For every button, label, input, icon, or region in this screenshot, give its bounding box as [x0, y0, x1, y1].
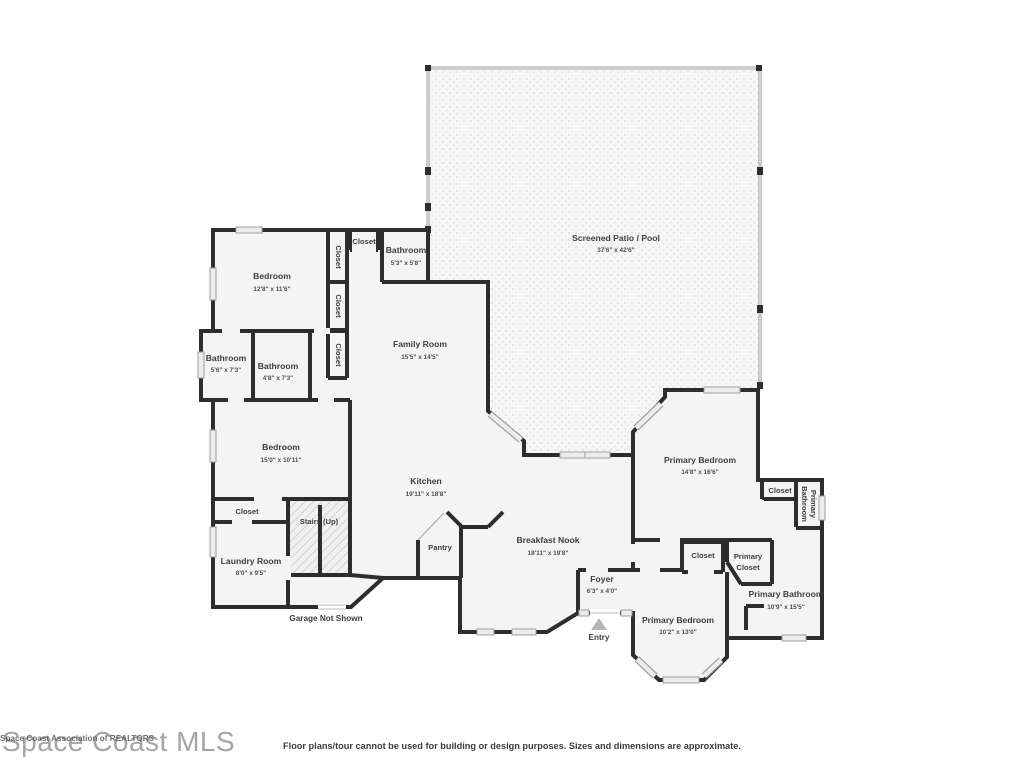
label-primary-bathroom-small: PrimaryBathroom	[800, 486, 818, 522]
label-primary-bedroom1-dims: 14'8" x 16'6"	[681, 469, 719, 476]
label-bathroom-left-name: Bathroom	[206, 353, 247, 363]
label-foyer-name: Foyer	[590, 574, 614, 584]
label-closet-bed2: Closet	[235, 507, 259, 516]
label-pantry: Pantry	[428, 543, 452, 552]
label-bedroom1-name: Bedroom	[253, 271, 291, 281]
label-bathroom-mid-dims: 4'8" x 7'3"	[263, 375, 293, 382]
watermark-overlay: Space Coast Association of REALTORS	[0, 734, 155, 743]
label-kitchen-name: Kitchen	[410, 476, 442, 486]
label-closet-foyer: Closet	[691, 551, 715, 560]
label-kitchen-dims: 19'11" x 18'8"	[406, 491, 447, 498]
disclaimer-text: Floor plans/tour cannot be used for buil…	[283, 741, 741, 751]
label-closet-v3: Closet	[334, 343, 343, 367]
label-closet-pb: Closet	[768, 486, 792, 495]
label-bathroom-top-name: Bathroom	[386, 245, 427, 255]
label-patio-dims: 37'6" x 42'6"	[597, 247, 635, 254]
floor-plan-canvas: Screened Patio / Pool 37'6" x 42'6" Bedr…	[0, 0, 1024, 768]
label-family-room-name: Family Room	[393, 339, 447, 349]
label-closet-top: Closet	[352, 237, 376, 246]
label-primary-closet-line2: Closet	[736, 563, 760, 572]
label-family-room-dims: 15'5" x 14'5"	[401, 354, 439, 361]
label-closet-v1: Closet	[334, 245, 343, 269]
label-primary-bathroom-name: Primary Bathroom	[749, 589, 824, 599]
label-breakfast-dims: 18'11" x 19'8"	[528, 550, 569, 557]
label-bathroom-top-dims: 5'3" x 5'8"	[391, 260, 421, 267]
label-primary-bedroom2-name: Primary Bedroom	[642, 615, 714, 625]
label-breakfast-name: Breakfast Nook	[516, 535, 579, 545]
label-laundry-dims: 8'0" x 9'5"	[236, 570, 266, 577]
label-bathroom-left-dims: 5'6" x 7'3"	[211, 367, 241, 374]
label-primary-bedroom2-dims: 10'2" x 13'0"	[659, 629, 697, 636]
label-patio-name: Screened Patio / Pool	[572, 233, 660, 243]
watermark: Space Coast MLS Space Coast Association …	[0, 726, 235, 757]
label-bathroom-mid-name: Bathroom	[258, 361, 299, 371]
label-primary-bedroom1-name: Primary Bedroom	[664, 455, 736, 465]
floor-plan-page: Screened Patio / Pool 37'6" x 42'6" Bedr…	[0, 0, 1024, 768]
label-bedroom1-dims: 12'8" x 11'6"	[253, 286, 290, 293]
label-laundry-name: Laundry Room	[221, 556, 282, 566]
label-garage-note: Garage Not Shown	[289, 614, 362, 623]
label-closet-v2: Closet	[334, 294, 343, 318]
label-entry: Entry	[589, 633, 610, 642]
label-bedroom2-dims: 15'0" x 10'11"	[261, 457, 302, 464]
entry-arrow-icon	[591, 618, 607, 630]
label-primary-bathroom-dims: 10'9" x 15'5"	[767, 604, 805, 611]
label-foyer-dims: 6'3" x 4'0"	[587, 588, 617, 595]
label-stairs: Stairs (Up)	[300, 517, 339, 526]
label-primary-closet-line1: Primary	[734, 552, 763, 561]
label-bedroom2-name: Bedroom	[262, 442, 300, 452]
